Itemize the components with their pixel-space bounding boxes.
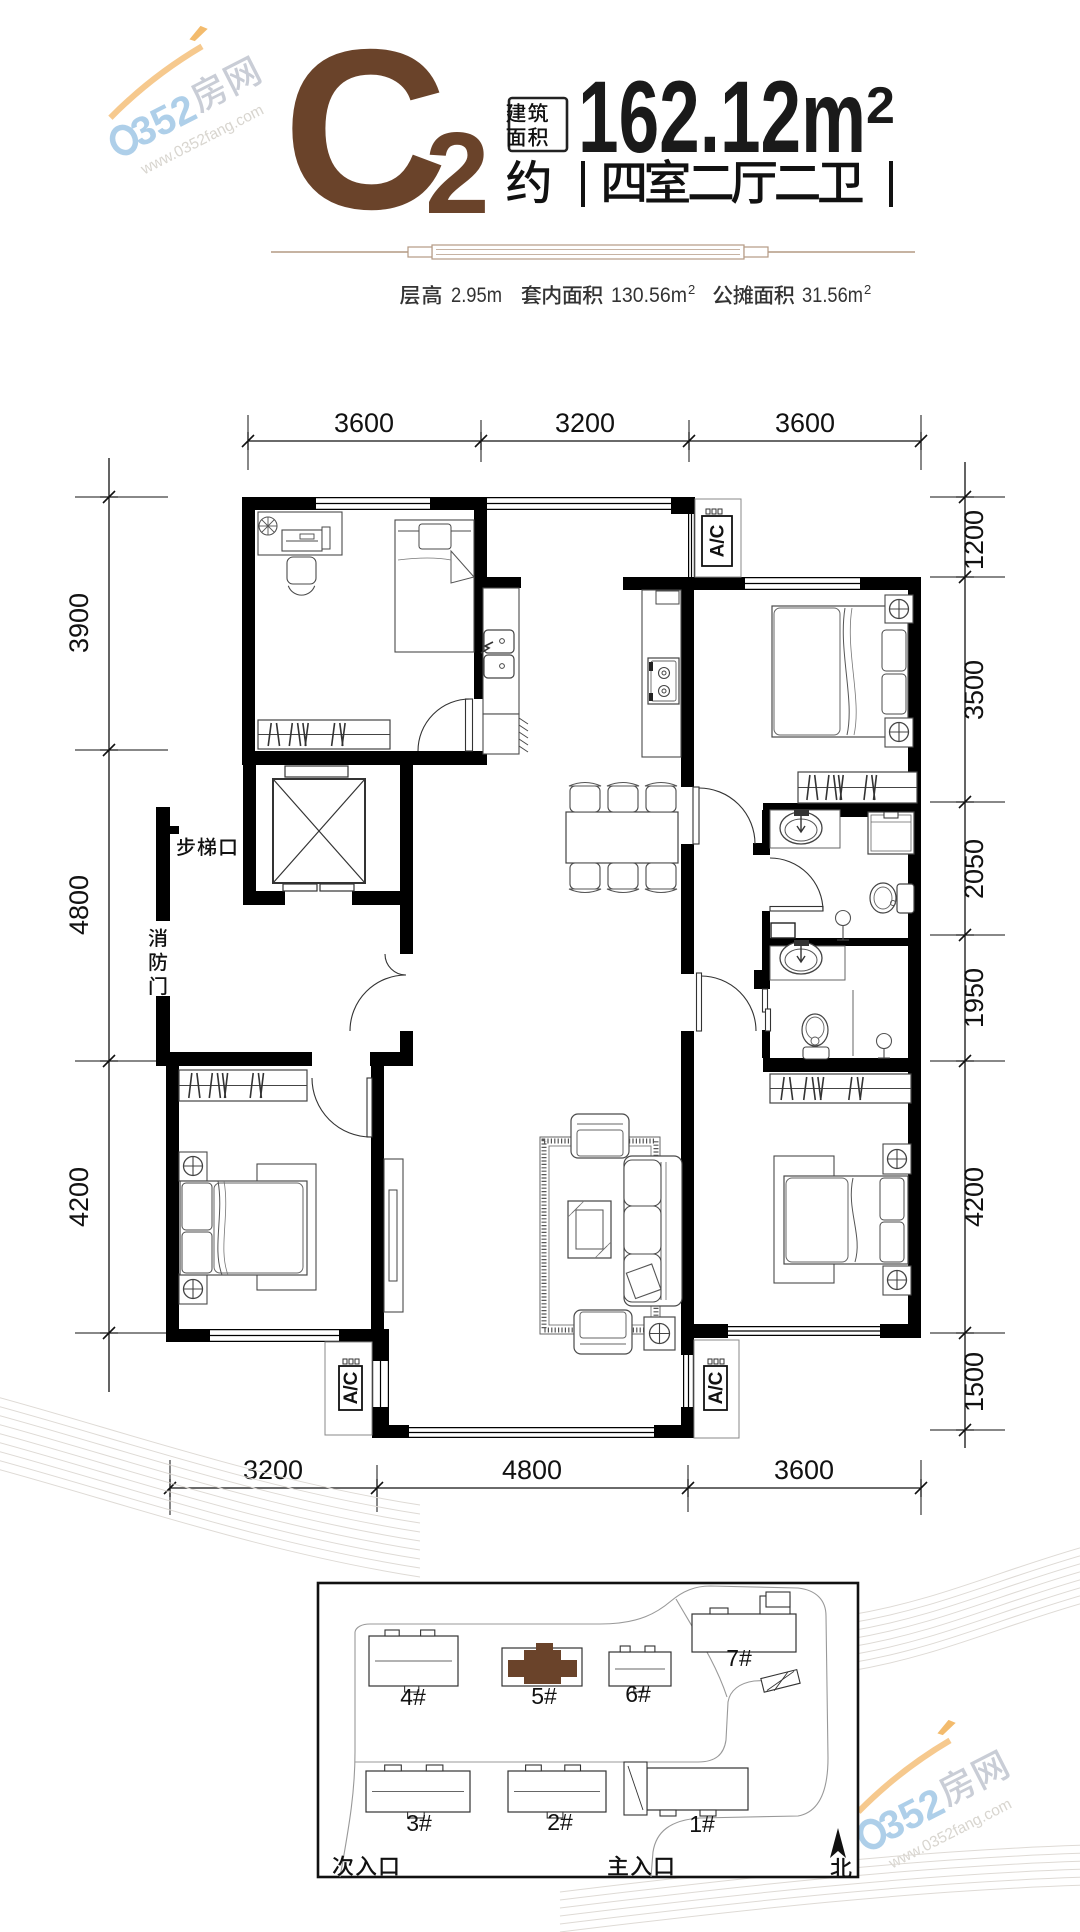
svg-text:1500: 1500 — [959, 1352, 989, 1412]
svg-text:130.56m: 130.56m — [611, 284, 687, 307]
svg-text:3200: 3200 — [555, 408, 615, 438]
svg-text:6#: 6# — [625, 1681, 651, 1707]
svg-text:3#: 3# — [406, 1810, 432, 1836]
svg-text:5#: 5# — [531, 1683, 557, 1709]
svg-text:2: 2 — [864, 282, 871, 297]
svg-text:3600: 3600 — [775, 408, 835, 438]
svg-text:4800: 4800 — [64, 875, 94, 935]
svg-text:C: C — [283, 3, 448, 257]
svg-text:2: 2 — [866, 77, 895, 135]
svg-text:2: 2 — [425, 108, 490, 238]
svg-text:A/C: A/C — [341, 1371, 362, 1404]
svg-text:1950: 1950 — [959, 968, 989, 1028]
svg-text:3600: 3600 — [334, 408, 394, 438]
svg-text:3600: 3600 — [774, 1455, 834, 1485]
svg-text:2#: 2# — [547, 1809, 573, 1835]
svg-text:4200: 4200 — [959, 1167, 989, 1227]
svg-text:2: 2 — [688, 282, 695, 297]
svg-text:A/C: A/C — [706, 1371, 727, 1404]
svg-text:1200: 1200 — [959, 510, 989, 570]
svg-text:A/C: A/C — [708, 524, 729, 557]
svg-text:4#: 4# — [400, 1684, 426, 1710]
svg-text:1#: 1# — [689, 1811, 715, 1837]
svg-text:3500: 3500 — [959, 660, 989, 720]
svg-text:162.12m: 162.12m — [578, 60, 866, 174]
svg-text:4800: 4800 — [502, 1455, 562, 1485]
svg-text:7#: 7# — [726, 1645, 752, 1671]
svg-text:2050: 2050 — [959, 839, 989, 899]
svg-text:3900: 3900 — [64, 593, 94, 653]
svg-text:4200: 4200 — [64, 1167, 94, 1227]
svg-text:31.56m: 31.56m — [802, 284, 863, 307]
svg-text:2.95m: 2.95m — [451, 284, 502, 307]
